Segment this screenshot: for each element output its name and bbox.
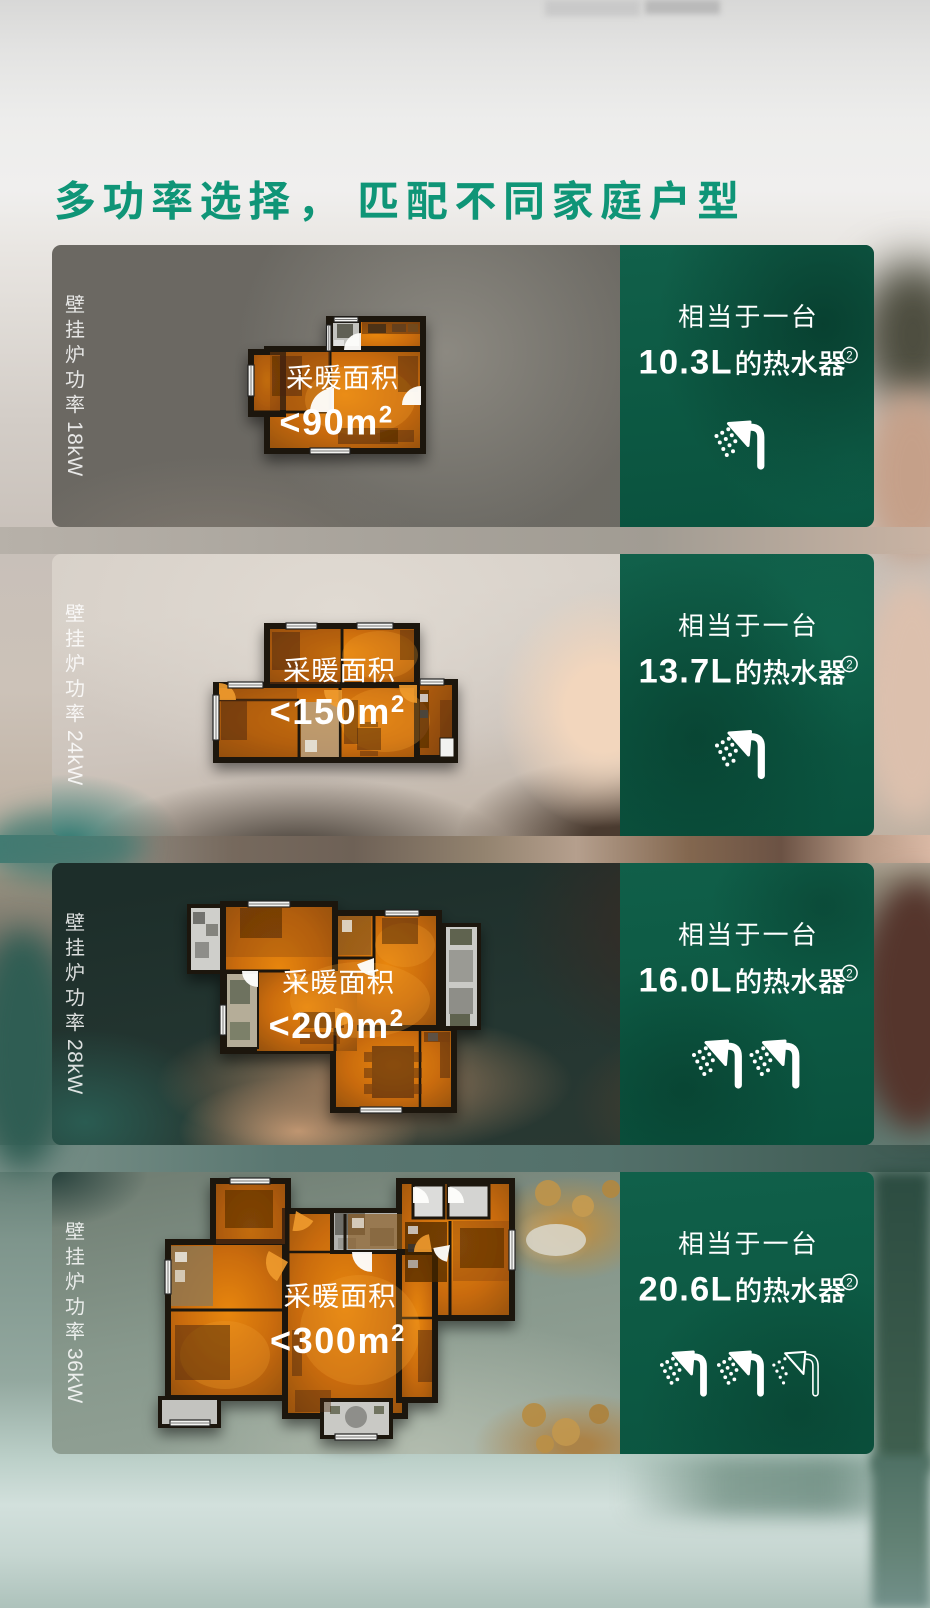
svg-text:13.7L: 13.7L [639, 653, 733, 691]
svg-text:24kW: 24kW [63, 730, 86, 786]
svg-text:2: 2 [846, 351, 852, 363]
svg-text:20.6L: 20.6L [639, 1271, 733, 1309]
svg-text:<300m2: <300m2 [270, 1320, 406, 1361]
svg-text:<90m2: <90m2 [279, 402, 393, 443]
svg-text:28kW: 28kW [63, 1039, 86, 1095]
svg-text:2: 2 [846, 1278, 852, 1290]
svg-text:2: 2 [846, 969, 852, 981]
svg-text:<200m2: <200m2 [269, 1005, 405, 1046]
svg-text:2: 2 [846, 660, 852, 672]
svg-text:18kW: 18kW [63, 421, 86, 477]
svg-text:<150m2: <150m2 [270, 691, 406, 732]
svg-text:16.0L: 16.0L [639, 962, 733, 1000]
svg-text:10.3L: 10.3L [639, 344, 733, 382]
svg-text:36kW: 36kW [63, 1348, 86, 1404]
